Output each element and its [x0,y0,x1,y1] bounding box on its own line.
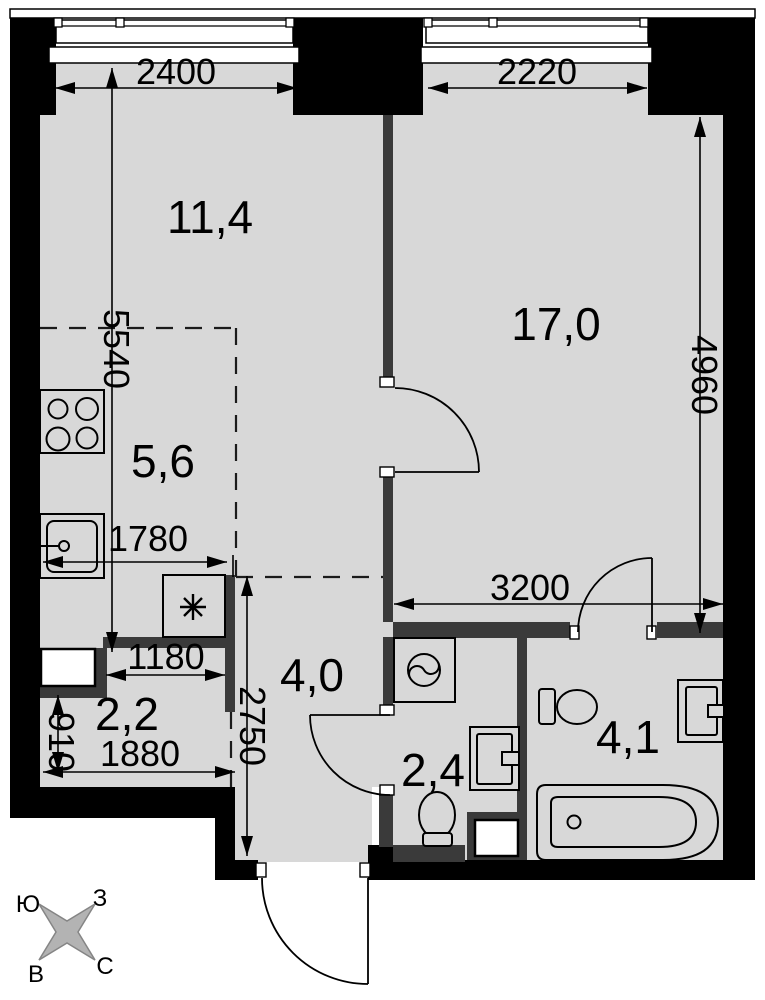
compass-letter-south: Ю [16,891,40,918]
toilet-bowl [419,792,455,838]
floor-bedroom [383,63,723,637]
storage-cabinet [163,575,225,637]
wall-vestibule-left [215,818,235,880]
floor-plan: 2400 2220 5540 4960 1780 3200 1180 2750 … [0,0,765,1000]
dim-label: 3200 [490,567,570,608]
washing-machine-icon [394,638,455,702]
wc-washbasin-icon [470,727,519,790]
wall-top-pier [293,18,423,115]
bathtub-icon [537,785,718,860]
room-area-label: 4,1 [596,711,660,763]
door-jamb [256,863,266,877]
facade-strip [10,9,755,18]
wall-left [10,115,40,818]
window-right-mullion [489,18,497,27]
wall-bottom-left [10,787,235,818]
toilet-bowl [557,690,597,724]
dim-label: 1780 [108,518,188,559]
burner [77,428,98,449]
door-swing-arc [262,878,368,984]
bathroom-washbasin-icon [678,680,724,742]
room-area-label: 2,4 [401,744,465,796]
wall-entry-right-step [368,845,393,862]
basin-tap [502,752,519,765]
compass-letter-north: С [96,953,113,980]
room-area-label: 2,2 [95,688,159,740]
kitchen-sink-icon [40,514,104,578]
door-jamb [380,377,394,387]
toilet-tank [539,689,555,724]
wall-bath-top-right [657,622,723,638]
wc-toilet-icon [419,792,455,846]
room-area-label: 11,4 [167,191,253,243]
room-area-label: 4,0 [280,649,344,701]
bathtub-drain [568,816,581,829]
wall-wc-left-upper [383,637,393,705]
window-left-frame [56,20,293,43]
window-left-jamb [286,18,294,27]
compass-rose-icon: Ю З В С [16,885,114,988]
plumbing-shaft-box [475,820,518,856]
burner [47,428,70,451]
burner [76,398,98,420]
stove-burners-icon [40,390,104,453]
window-right-jamb [424,18,432,27]
wall-wc-left-lower [379,795,393,847]
dim-label: 1180 [127,636,204,677]
dim-label: 2400 [136,51,216,92]
compass-letter-east: В [28,961,44,988]
dim-label: 2750 [232,686,273,766]
dim-label: 910 [41,712,82,772]
room-area-label: 5,6 [131,435,195,487]
compass-star [39,904,95,960]
sink-tap-head [59,541,69,551]
wall-wc-bottom [393,845,465,862]
door-entrance [256,863,370,984]
door-jamb [380,705,394,715]
door-jamb [360,863,370,877]
toilet-base [423,833,452,846]
bathroom-toilet-icon [539,689,597,724]
niche-shaft-box [41,649,95,686]
compass-letter-west: З [93,885,108,912]
wall-bottom-right [368,860,755,880]
dim-label: 4960 [684,335,725,415]
wall-top-left [10,18,56,115]
window-left-jamb [54,18,62,27]
burner [49,400,68,419]
floor-plan-svg: 2400 2220 5540 4960 1780 3200 1180 2750 … [0,0,765,1000]
wall-entry-left [235,860,258,880]
wall-bath-top-left [393,622,570,638]
door-jamb [380,467,394,477]
window-right-jamb [640,18,648,27]
door-jamb [380,785,394,795]
basin-tap [708,705,724,717]
room-area-label: 17,0 [511,298,601,350]
window-right-frame [426,20,648,43]
window-left-mullion [116,18,124,27]
dim-label: 2220 [497,51,577,92]
wall-top-right [648,18,755,115]
wall-right [723,115,755,880]
dim-label: 5540 [96,309,137,389]
floor-vestibule [235,787,372,862]
wall-center-mid [383,477,393,622]
wall-center-upper [383,115,393,377]
